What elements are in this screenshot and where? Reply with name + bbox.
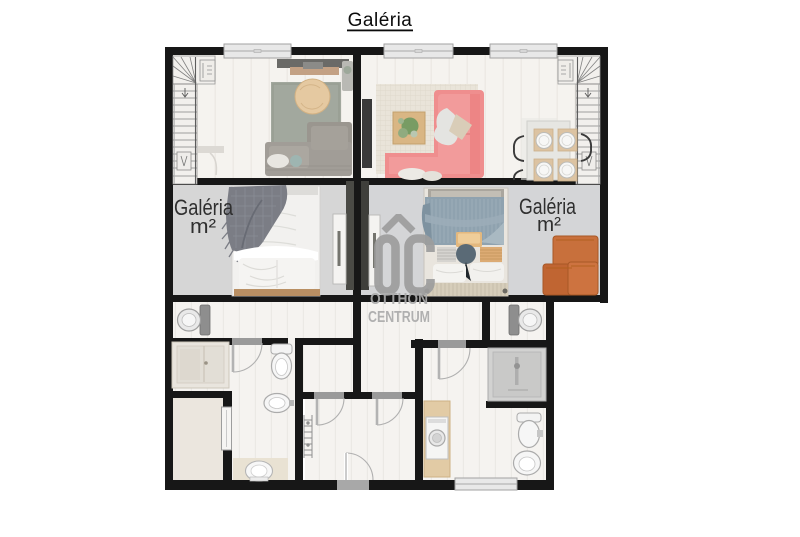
svg-text:m²: m² bbox=[190, 216, 216, 238]
svg-text:m²: m² bbox=[537, 214, 561, 236]
svg-text:Galéria: Galéria bbox=[348, 10, 413, 31]
svg-text:OTTHON: OTTHON bbox=[370, 291, 428, 308]
svg-text:CENTRUM: CENTRUM bbox=[368, 309, 430, 326]
